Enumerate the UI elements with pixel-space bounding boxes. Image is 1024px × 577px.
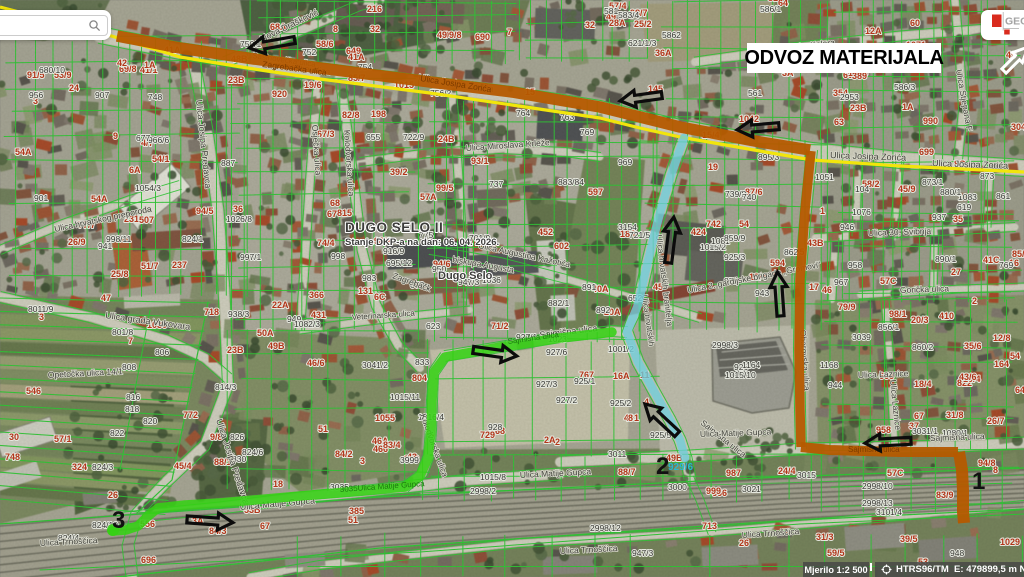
svg-text:Stanje DKP-a na dan: 06. 04. 2: Stanje DKP-a na dan: 06. 04. 2026.	[345, 237, 499, 248]
svg-text:DUGO SELO II: DUGO SELO II	[345, 220, 443, 235]
svg-text:Dugo Selo: Dugo Selo	[438, 270, 493, 282]
svg-text:929/6: 929/6	[668, 462, 693, 473]
svg-text:3: 3	[112, 507, 125, 534]
svg-text:GEO: GEO	[1005, 16, 1024, 28]
svg-text:2: 2	[656, 453, 669, 480]
svg-text:1: 1	[972, 468, 985, 495]
